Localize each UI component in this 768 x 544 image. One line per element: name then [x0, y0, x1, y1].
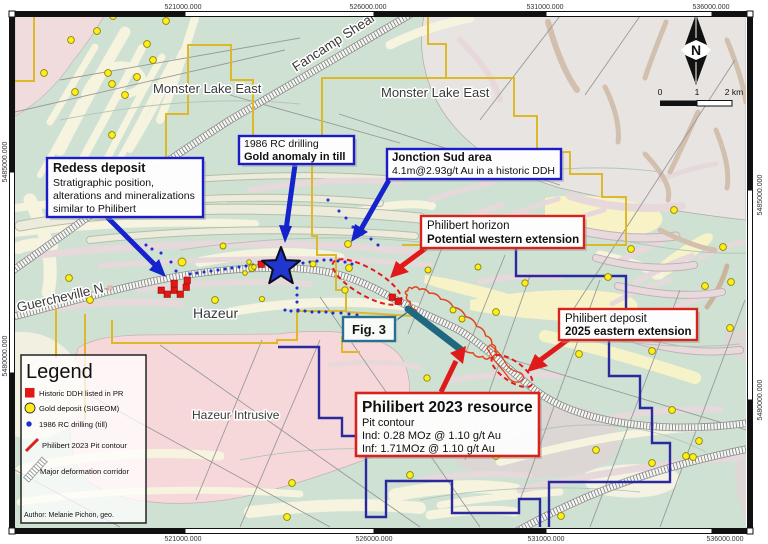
svg-text:Philibert 2023 Pit contour: Philibert 2023 Pit contour [42, 441, 127, 450]
svg-text:2025 eastern extension: 2025 eastern extension [565, 326, 692, 338]
svg-text:Monster Lake East: Monster Lake East [153, 81, 262, 96]
svg-text:Historic DDH listed in PR: Historic DDH listed in PR [39, 389, 124, 398]
svg-text:similar to Philibert: similar to Philibert [53, 203, 136, 215]
svg-text:526000.000: 526000.000 [356, 536, 393, 543]
svg-text:4.1m@2.93g/t Au in a historic: 4.1m@2.93g/t Au in a historic DDH [392, 165, 555, 177]
svg-text:Philibert 2023 resource: Philibert 2023 resource [362, 399, 533, 416]
svg-text:Major deformation corridor: Major deformation corridor [40, 467, 130, 476]
svg-text:Potential western extension: Potential western extension [427, 234, 579, 246]
svg-text:0: 0 [658, 87, 663, 97]
svg-text:531000.000: 531000.000 [527, 4, 564, 11]
svg-text:5480000.000: 5480000.000 [757, 379, 764, 420]
svg-text:Redess deposit: Redess deposit [53, 161, 146, 175]
svg-text:Stratigraphic position,: Stratigraphic position, [53, 177, 154, 189]
svg-text:521000.000: 521000.000 [165, 4, 202, 11]
svg-text:521000.000: 521000.000 [165, 536, 202, 543]
svg-text:5485000.000: 5485000.000 [757, 174, 764, 215]
svg-text:Monster Lake East: Monster Lake East [381, 85, 490, 100]
svg-text:1986 RC drilling: 1986 RC drilling [244, 138, 319, 150]
svg-text:Inf: 1.71MOz @ 1.10 g/t Au: Inf: 1.71MOz @ 1.10 g/t Au [362, 443, 495, 455]
svg-text:531000.000: 531000.000 [528, 536, 565, 543]
svg-text:alterations and mineralization: alterations and mineralizations [53, 190, 195, 202]
svg-text:Jonction Sud area: Jonction Sud area [392, 152, 492, 164]
svg-text:Author: Melanie Pichon, geo.: Author: Melanie Pichon, geo. [24, 512, 114, 519]
svg-text:N: N [691, 42, 701, 58]
svg-text:Hazeur: Hazeur [193, 305, 238, 321]
svg-text:Legend: Legend [26, 361, 93, 383]
svg-text:Hazeur Intrusive: Hazeur Intrusive [192, 408, 280, 422]
svg-text:Fig. 3: Fig. 3 [352, 322, 386, 337]
svg-text:536000.000: 536000.000 [707, 536, 744, 543]
svg-text:1: 1 [695, 87, 700, 97]
svg-text:2 km: 2 km [725, 87, 743, 97]
svg-text:5480000.000: 5480000.000 [2, 335, 9, 376]
svg-text:536000.000: 536000.000 [693, 4, 730, 11]
svg-text:Ind: 0.28 MOz @ 1.10 g/t Au: Ind: 0.28 MOz @ 1.10 g/t Au [362, 430, 501, 442]
svg-text:1986 RC drilling (till): 1986 RC drilling (till) [39, 420, 108, 429]
svg-text:Philibert deposit: Philibert deposit [565, 313, 648, 325]
svg-text:Gold anomaly in till: Gold anomaly in till [244, 151, 345, 163]
svg-text:526000.000: 526000.000 [350, 4, 387, 11]
svg-text:Gold deposit (SIGEOM): Gold deposit (SIGEOM) [39, 404, 120, 413]
svg-text:Philibert horizon: Philibert horizon [427, 220, 509, 232]
svg-text:5485000.000: 5485000.000 [2, 141, 9, 182]
svg-text:Pit contour: Pit contour [362, 417, 415, 429]
